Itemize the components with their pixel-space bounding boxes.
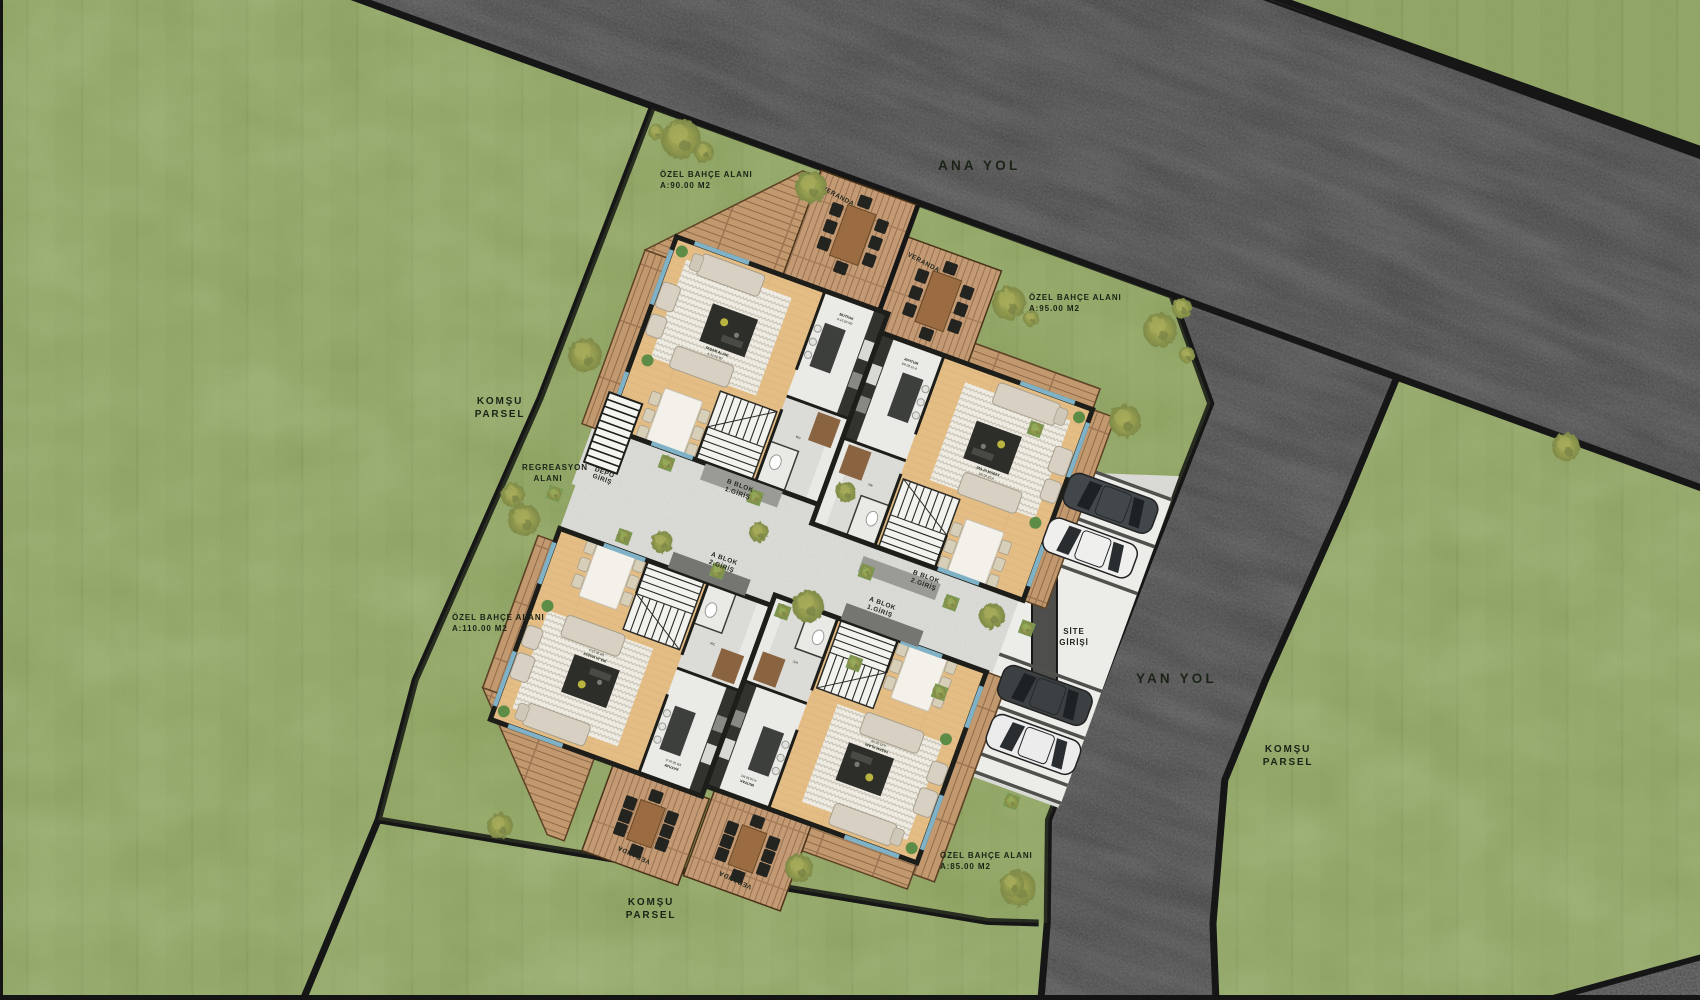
svg-text:ÖZEL BAHÇE ALANI: ÖZEL BAHÇE ALANI bbox=[660, 170, 753, 179]
svg-text:PARSEL: PARSEL bbox=[1263, 757, 1314, 768]
svg-text:KOMŞU: KOMŞU bbox=[1265, 744, 1311, 755]
svg-text:A:90.00 M2: A:90.00 M2 bbox=[660, 181, 711, 190]
svg-text:KOMŞU: KOMŞU bbox=[477, 396, 523, 407]
svg-text:PARSEL: PARSEL bbox=[626, 910, 677, 921]
svg-text:GİRİŞİ: GİRİŞİ bbox=[1059, 638, 1088, 647]
svg-text:ALANI: ALANI bbox=[534, 474, 563, 483]
svg-text:KOMŞU: KOMŞU bbox=[628, 897, 674, 908]
svg-text:ÖZEL BAHÇE ALANI: ÖZEL BAHÇE ALANI bbox=[452, 613, 545, 622]
svg-text:PARSEL: PARSEL bbox=[475, 409, 526, 420]
svg-text:REGREASYON: REGREASYON bbox=[522, 463, 588, 472]
svg-text:ÖZEL BAHÇE ALANI: ÖZEL BAHÇE ALANI bbox=[940, 851, 1033, 860]
svg-text:A:95.00 M2: A:95.00 M2 bbox=[1029, 304, 1080, 313]
svg-text:YAN YOL: YAN YOL bbox=[1136, 671, 1217, 686]
svg-text:ANA YOL: ANA YOL bbox=[938, 158, 1020, 173]
svg-text:SİTE: SİTE bbox=[1063, 627, 1084, 636]
svg-text:A:110.00 M2: A:110.00 M2 bbox=[452, 624, 508, 633]
svg-text:A:85.00 M2: A:85.00 M2 bbox=[940, 862, 991, 871]
svg-text:ÖZEL BAHÇE ALANI: ÖZEL BAHÇE ALANI bbox=[1029, 293, 1122, 302]
